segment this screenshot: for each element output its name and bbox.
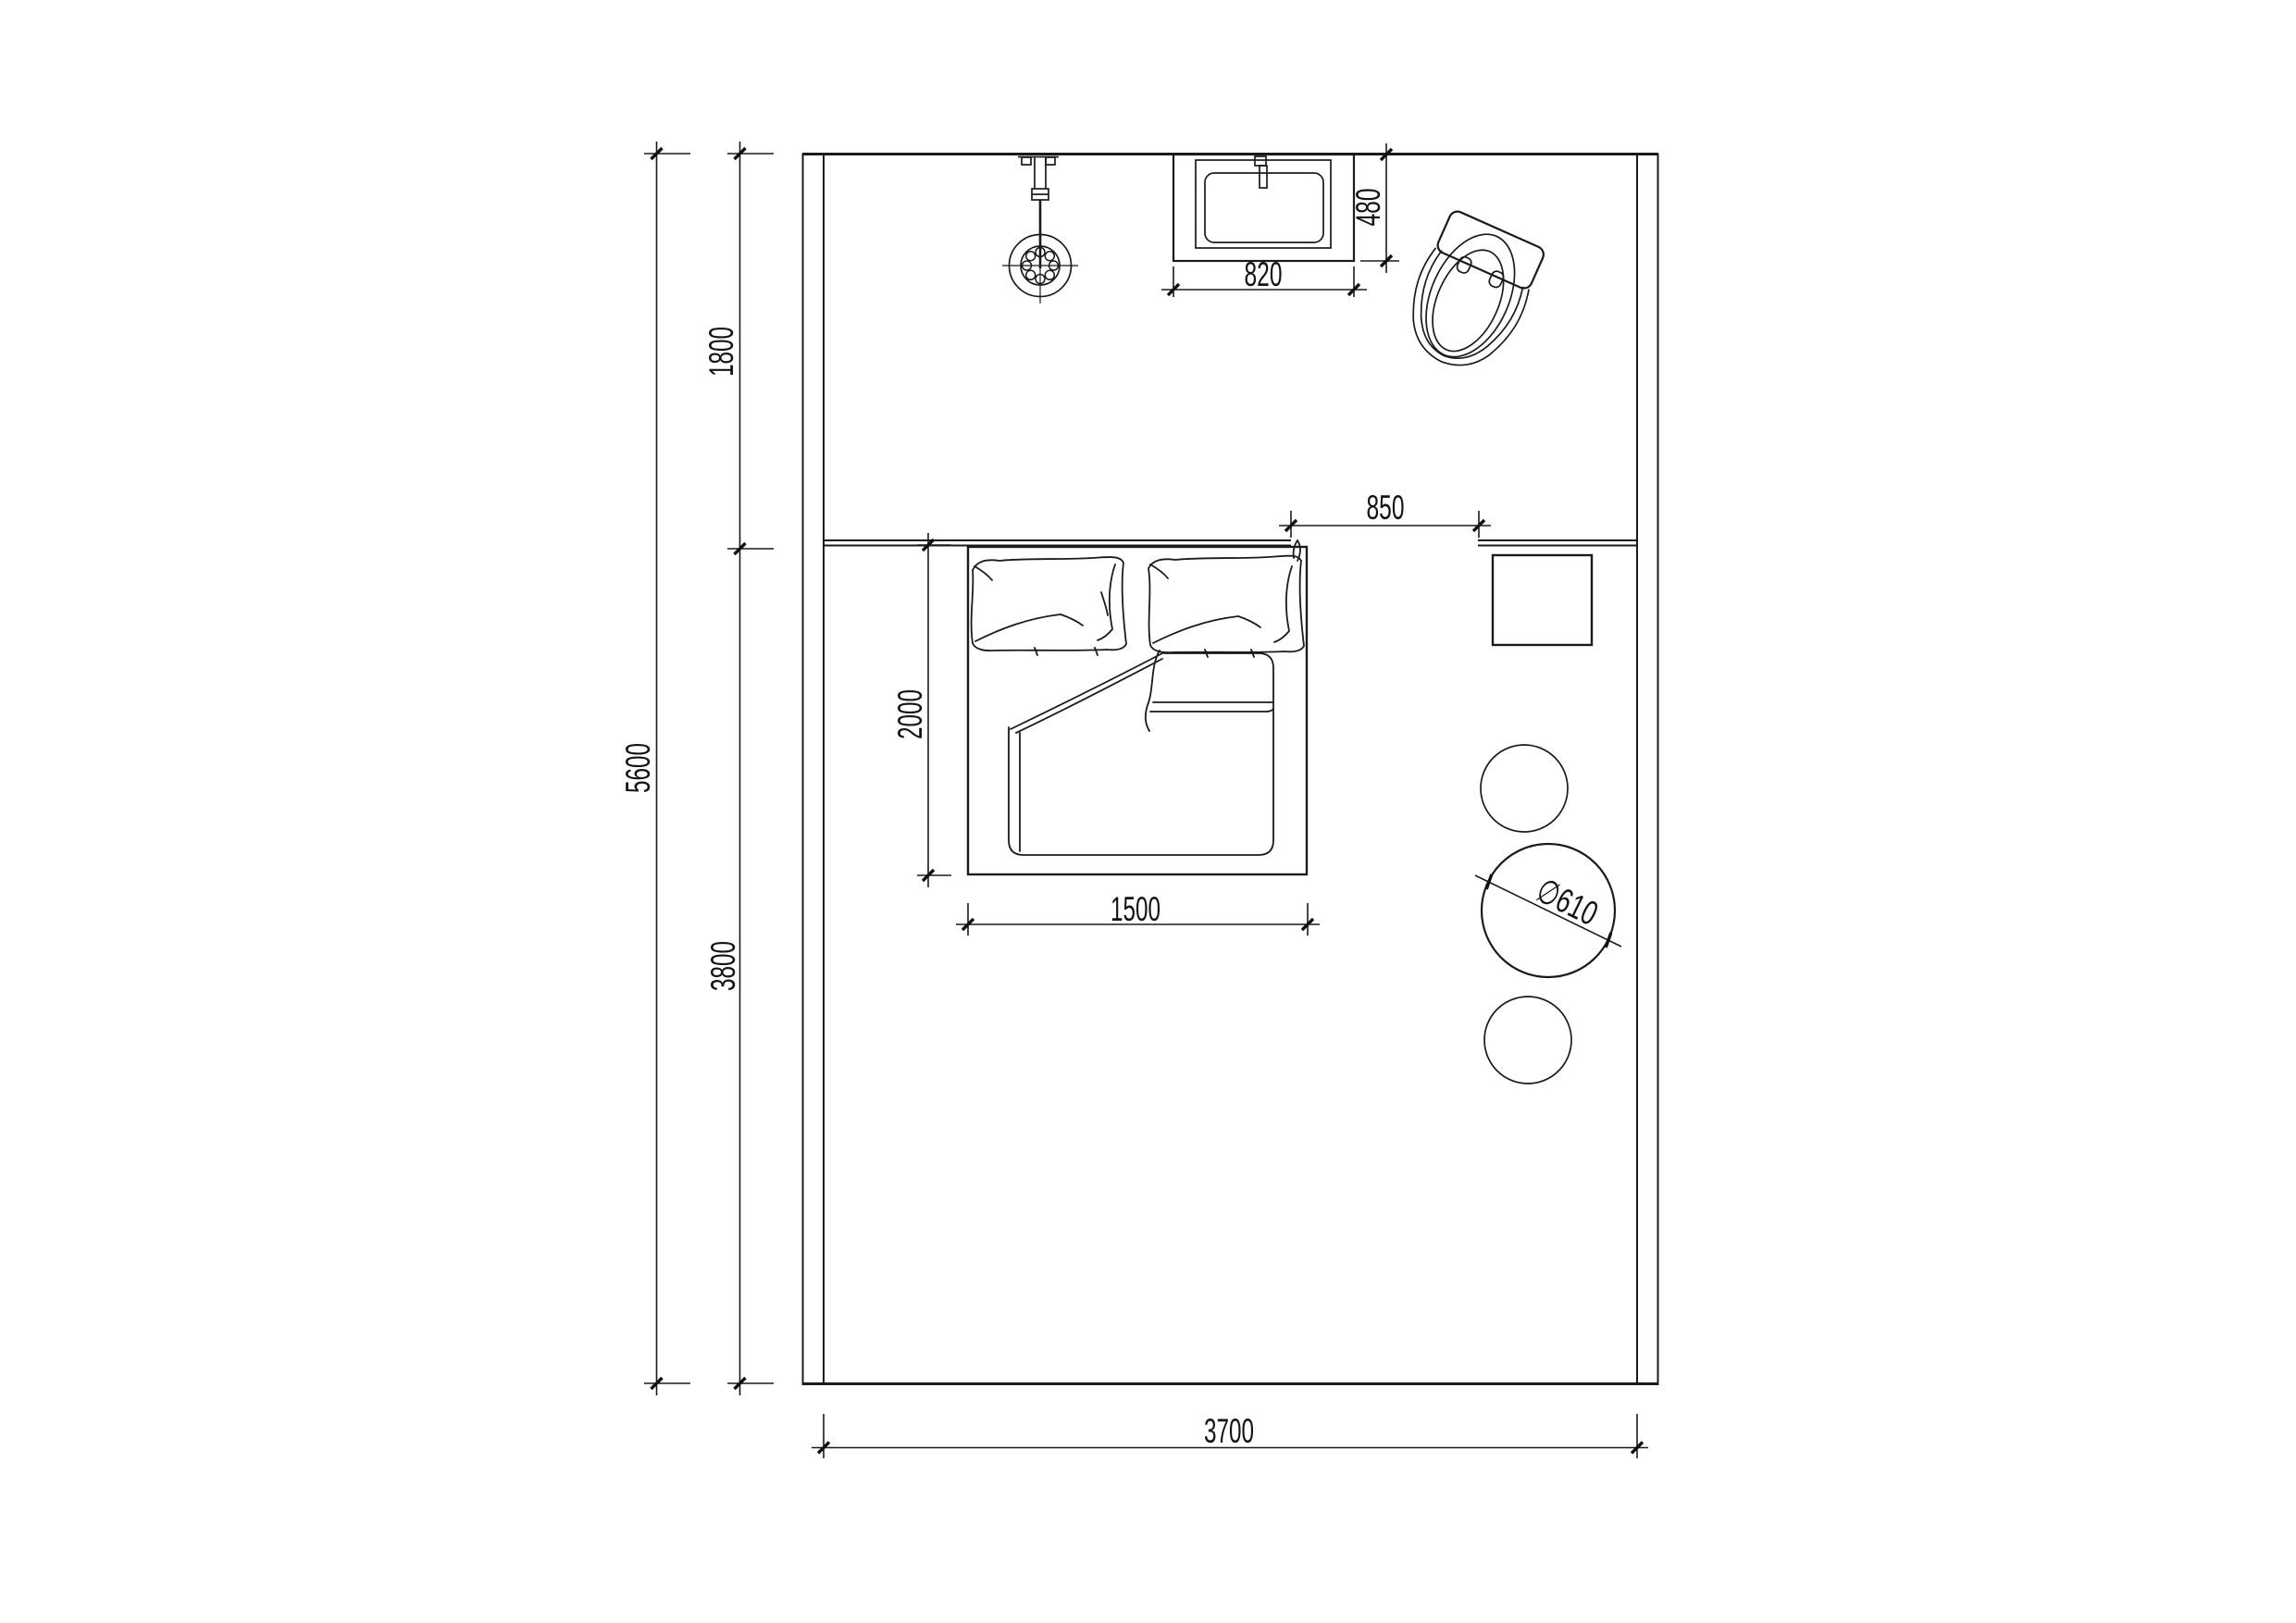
toilet-symbol (1392, 207, 1550, 383)
dim-label-5600: 5600 (619, 743, 657, 793)
dim-label-1500: 1500 (1111, 890, 1160, 928)
dim-passage-opening: 850 (1279, 489, 1491, 538)
dim-table-diameter: ∅610 (1475, 871, 1621, 948)
floor-plan-canvas: 5600 1800 3800 3700 820 480 (0, 0, 2296, 1623)
floor-plan-drawing: 5600 1800 3800 3700 820 480 (0, 0, 2296, 1623)
washbasin-vanity-symbol (1173, 155, 1354, 261)
dim-bed-length: 2000 (891, 533, 951, 887)
faucet-icon (1255, 156, 1266, 166)
dim-basin-depth: 480 (1349, 143, 1399, 273)
dim-overall-depth: 5600 (619, 142, 690, 1395)
dim-label-3700: 3700 (1204, 1412, 1254, 1450)
dim-label-2000: 2000 (891, 689, 929, 739)
pillow-left (972, 557, 1126, 650)
pillow-right (1148, 540, 1304, 652)
dim-label-820: 820 (1245, 255, 1283, 293)
dim-label-3800: 3800 (704, 941, 742, 991)
shower-head-symbol (1002, 157, 1078, 304)
bed-frame (968, 547, 1307, 874)
dim-label-480: 480 (1349, 189, 1387, 227)
stool-top-symbol (1481, 745, 1568, 832)
dim-label-1800: 1800 (702, 327, 740, 377)
dim-label-850: 850 (1367, 489, 1405, 527)
stool-bottom-symbol (1484, 997, 1571, 1084)
dim-overall-width: 3700 (812, 1412, 1648, 1458)
double-bed-symbol (968, 540, 1307, 874)
duvet (1009, 650, 1273, 855)
dim-label-610: ∅610 (1531, 871, 1604, 933)
nightstand-symbol (1493, 555, 1592, 645)
room-walls (802, 154, 1658, 1385)
dim-zone-depths: 1800 3800 (702, 142, 774, 1395)
dim-bed-width: 1500 (956, 890, 1320, 935)
